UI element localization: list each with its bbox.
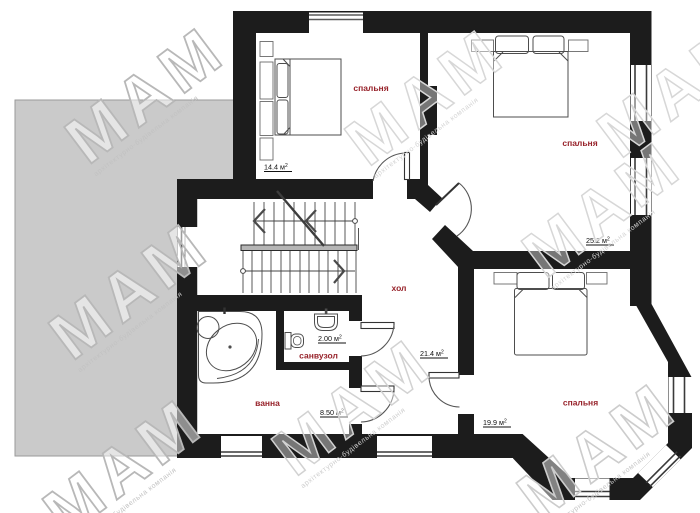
svg-text:14.4 м2: 14.4 м2 [264,163,288,172]
svg-text:хол: хол [392,283,407,293]
svg-text:санвузол: санвузол [299,351,338,361]
svg-text:спальня: спальня [562,138,597,148]
svg-text:2.00 м2: 2.00 м2 [318,334,342,343]
svg-text:ванна: ванна [255,398,280,408]
svg-text:19.9 м2: 19.9 м2 [483,418,507,427]
